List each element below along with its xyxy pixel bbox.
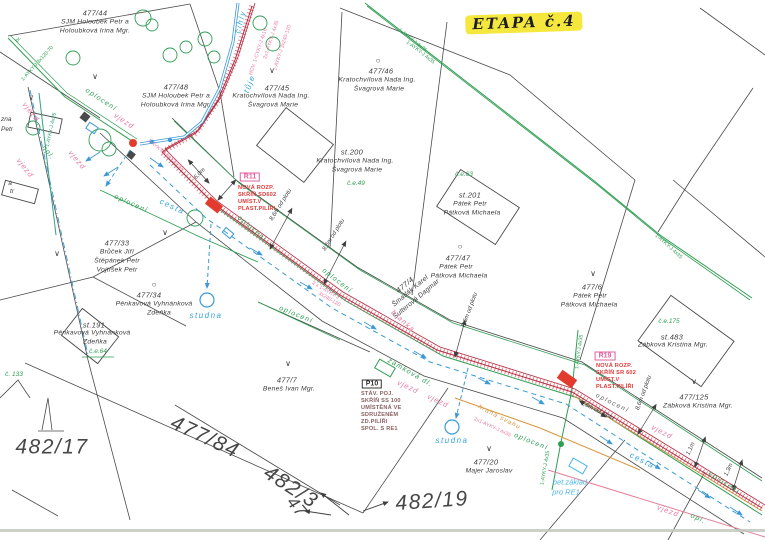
cabinet-p10-note: UMÍSTĚNÁ VE — [361, 406, 401, 412]
point-symbol: ○ — [152, 281, 157, 289]
cabinet-r11-note: UMÍST.V — [238, 200, 261, 206]
fence-label: oplocení — [278, 305, 314, 325]
parcel-477-46-owner: Švagrová Marie — [354, 87, 404, 94]
road-label: cesta — [158, 198, 186, 217]
dimension-label: 8,6m od plotu — [322, 218, 346, 252]
parcel-st200-owner: Kratochvílová Nada Ing. — [316, 159, 393, 166]
cabinet-p10-note: SKŘÍŇ SS 100 — [361, 399, 401, 405]
cabinet-r19-code: R19 — [595, 352, 616, 361]
cabinet-p10-note: ZD.PILÍŘI — [361, 420, 388, 426]
edge-fragment: tr — [10, 189, 14, 196]
parcel-477-125-owner: Zábková Kristina Mgr. — [663, 404, 733, 411]
cabinet-r19-note: UMÍST.V — [596, 378, 619, 384]
point-symbol: ○ — [458, 243, 463, 251]
parcel-477-48-owner: SJM Holoubek Petr a — [142, 94, 210, 101]
cable-label: 1-AYKY-J 3x120-70 — [146, 139, 184, 172]
parcel-477-45-owner: Kratochvílová Nada Ing. — [232, 94, 309, 101]
cable-label: 1-AYKY-J 4x25 — [46, 113, 58, 148]
cabinet-r11-note: PLAST.PILÍŘI — [238, 207, 276, 213]
driveway-label: vjezd — [15, 157, 35, 179]
dimension-label: 8,6m od plotu — [635, 375, 653, 411]
parcel-477-44-owner: SJM Holoubek Petr a — [61, 20, 129, 27]
dimension-label: 8,6m od plotu — [461, 292, 479, 328]
survey-mark: ∨ — [28, 94, 34, 102]
parcel-ce64: č.e.64 — [89, 349, 107, 356]
driveway-label: vjezd — [656, 504, 680, 519]
cable-label: 1-AYKY-J 4x35 — [653, 233, 682, 260]
parcel-477-6-owner: Pátek Petr — [573, 294, 607, 301]
map-labels-layer: ETAPA č.4477/44SJM Holoubek Petr aHoloub… — [0, 0, 765, 540]
parcel-477-7-owner: Beneš Ivan Mgr. — [263, 387, 315, 394]
point-symbol: ○ — [376, 57, 381, 65]
parcel-477-33-number: 477/33 — [105, 239, 130, 247]
driveway-label: vjezd — [650, 424, 673, 441]
parcel-st483-number: st.483 — [661, 333, 683, 341]
cabinet-r19-note: NOVÁ ROZP. — [596, 364, 632, 370]
parcel-st200-number: st.200 — [341, 148, 363, 156]
parcel-st191-number: st.191 — [83, 321, 105, 329]
parcel-477-33-owner: Štěpánek Petr — [94, 259, 140, 266]
cabinet-r19-note: SKŘÍŇ SR 602 — [596, 371, 636, 377]
cadastral-map: ETAPA č.4477/44SJM Holoubek Petr aHoloub… — [0, 0, 765, 540]
dimension-label: 1,1m — [685, 442, 696, 457]
survey-mark: ∨ — [285, 360, 291, 368]
parcel-477-34-owner: Zdeňka — [147, 311, 171, 318]
survey-mark: ∨ — [54, 250, 60, 258]
driveway-label: vjezd — [21, 101, 41, 123]
parcel-477-45-number: 477/45 — [265, 84, 290, 92]
parcel-st201-number: st.201 — [459, 191, 481, 199]
edge-fragment: zna — [1, 117, 11, 124]
fence-label: oplocení — [236, 215, 268, 244]
parcel-477-34-number: 477/34 — [137, 291, 162, 299]
parcel-477-33-owner: Vojtíšek Petr — [97, 268, 138, 275]
driveway-label: vjezd — [67, 149, 87, 171]
parcel-ce49: č.e.49 — [347, 181, 365, 188]
cabinet-p10-note: SDRUŽENÉM — [361, 413, 398, 419]
survey-mark: ∨ — [162, 229, 168, 237]
parcel-477-44-owner: Holoubková Irina Mgr. — [60, 29, 130, 36]
cable-label: br. — [15, 36, 23, 44]
parcel-477-6-owner: Pátková Michaela — [561, 303, 618, 310]
fence-label: oplocení — [513, 432, 549, 452]
cable-label: 1-AYKY-J 4x35 — [575, 335, 585, 370]
fence-label: opl. — [689, 512, 707, 525]
cabinet-r19-note: PLAST.PILÍŘI — [596, 385, 634, 391]
well-label: studna — [189, 312, 222, 320]
parcel-st483-owner: Zábková Kristina Mgr. — [638, 343, 708, 350]
parcel-477-48-number: 477/48 — [164, 83, 189, 91]
survey-mark: ∨ — [691, 378, 697, 386]
fence-label: oplocení — [113, 193, 149, 214]
cabinet-r11-note: NOVÁ ROZP. — [238, 186, 274, 192]
parcel-477-46-owner: Kratochvílová Nada Ing. — [338, 78, 415, 85]
parcel-477-47-owner: Pátková Michaela — [431, 274, 488, 281]
survey-mark: ∨ — [92, 73, 98, 81]
parcel-477-48-owner: Holoubková Irina Mgr. — [141, 103, 211, 110]
parcel-477-20-number: 477/20 — [474, 458, 499, 466]
parcel-st201-owner: Pátková Michaela — [444, 211, 501, 218]
parcel-477-125-number: 477/125 — [679, 393, 708, 401]
cabinet-r11-code: R11 — [240, 173, 260, 182]
parcel-477-84-number: 477/84 — [167, 412, 242, 462]
stage-note: ETAPA č.4 — [465, 11, 583, 34]
hedge-label: tůje — [243, 74, 257, 95]
parcel-st191-owner: Zdeňka — [83, 340, 107, 347]
parcel-477-47-number: 477/47 — [446, 254, 471, 262]
driveway-label: vjezd — [113, 112, 136, 131]
parcel-ce175: č.e.175 — [658, 319, 679, 326]
parcel-477-46-number: 477/46 — [369, 67, 394, 75]
survey-mark: ∨ — [486, 445, 492, 453]
parcel-477-44-number: 477/44 — [83, 9, 108, 17]
fence-label: oplocení — [84, 87, 118, 113]
cabinet-p10-code: P10 — [362, 380, 382, 389]
parcel-477-34-owner: Pěnkavová Vyhnánková — [116, 302, 193, 309]
parcel-st200-owner: Švagrová Marie — [332, 168, 382, 175]
driveway-label: vjezd — [426, 393, 450, 409]
parcel-477-7-number: 477/7 — [277, 376, 297, 384]
parcel-c133: č. 133 — [5, 372, 23, 379]
cable-label: 1-AYKY-J 3x120-70 — [21, 46, 55, 83]
parcel-477-47-owner: Pátek Petr — [439, 265, 473, 272]
road-label: cesta — [628, 451, 655, 470]
parcel-477-20-owner: Majer Jaroslav — [466, 469, 513, 476]
parcel-482-17-number: 482/17 — [15, 437, 88, 458]
well-label: studna — [435, 437, 468, 445]
material-label: cihly — [234, 10, 248, 35]
parcel-st191-owner: Pěnkavová Vyhnánková — [54, 331, 131, 338]
cable-label: 1-AYKY-J 4x35 — [540, 451, 551, 486]
parcel-477-45-owner: Švagrová Marie — [248, 103, 298, 110]
edge-fragment: á — [8, 181, 12, 188]
parcel-477-6-number: 477/6 — [582, 283, 602, 291]
cabinet-p10-note: STÁV. POJ. — [361, 392, 393, 398]
parcel-477-33-owner: Brůček Jiří — [100, 250, 134, 257]
foundation-label: pro RE1 — [552, 488, 580, 496]
edge-fragment: Petr — [1, 127, 13, 134]
parcel-482-19-number: 482/19 — [395, 488, 470, 514]
parcel-st201-owner: Pátek Petr — [453, 202, 487, 209]
foundation-label: bet.základ — [553, 478, 587, 486]
dimension-label: 6,0m — [193, 167, 207, 181]
cabinet-r11-note: SKŘÍŇ SD602 — [238, 193, 276, 199]
cabinet-p10-note: SPOL. S RE1 — [361, 427, 398, 433]
parcel-ce63: č.e.63 — [455, 172, 473, 179]
dimension-label: 1,3m — [723, 463, 734, 478]
survey-mark: ∨ — [590, 270, 596, 278]
driveway-label: vjezd — [396, 379, 420, 395]
